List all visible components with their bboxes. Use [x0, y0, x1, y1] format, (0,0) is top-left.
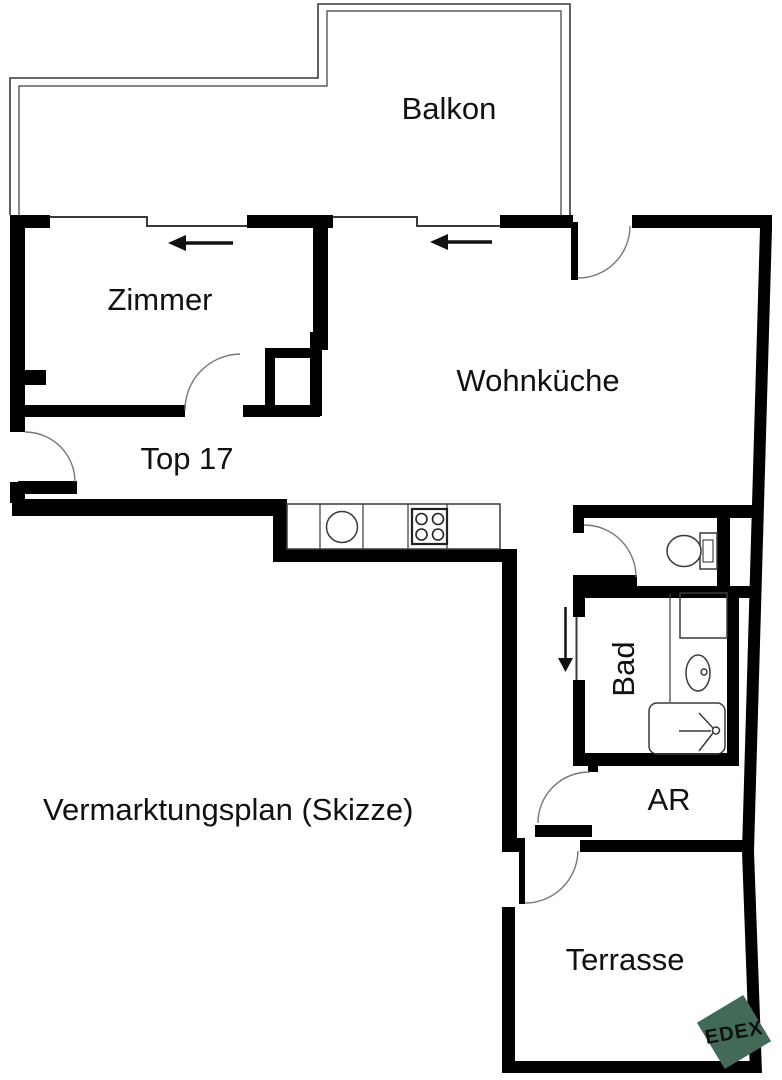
shaft-wall-left: [265, 350, 275, 412]
direction-arrow-icon: [558, 607, 573, 672]
bathroom-fixtures: [649, 593, 727, 754]
shower-icon: [649, 703, 725, 754]
wall-bad-east: [727, 598, 739, 766]
room-label-bad: Bad: [606, 641, 641, 696]
door-swing-arc: [185, 354, 240, 410]
wall-ar-south-left: [535, 825, 592, 837]
room-label-terrasse: Terrasse: [566, 942, 685, 977]
room-label-balkon: Balkon: [402, 91, 497, 126]
bath-counter: [680, 593, 727, 638]
wc-door-stub: [573, 518, 584, 533]
door-swing-arc: [538, 772, 590, 823]
ar-door-stub: [588, 757, 598, 772]
toilet-icon: [667, 533, 717, 569]
wall-wc-north: [573, 505, 754, 518]
wall-terrace-south: [502, 1061, 756, 1073]
door-swing-arc: [525, 851, 578, 903]
room-label-wohnkueche: Wohnküche: [456, 363, 619, 398]
shaft-wall-right: [310, 332, 322, 416]
room-label-ar: AR: [647, 782, 690, 817]
wall-bad-west-upper: [573, 598, 585, 617]
door-swing-arc: [584, 525, 636, 577]
wall-zimmer-south-2: [243, 405, 320, 417]
wall-zimmer-south-1: [25, 405, 185, 417]
floor-plan-drawing: Balkon Zimmer Wohnküche Top 17 Bad AR Te…: [0, 0, 782, 1080]
floor-plan-page: Balkon Zimmer Wohnküche Top 17 Bad AR Te…: [0, 0, 782, 1080]
wall-west-step: [502, 838, 525, 852]
window-line: [50, 217, 247, 226]
plan-title: Vermarktungsplan (Skizze): [43, 792, 413, 827]
wall-top-3: [500, 215, 573, 228]
direction-arrow-icon: [168, 235, 233, 251]
wall-top-2: [247, 215, 333, 228]
washbasin-icon: [686, 655, 710, 691]
wall-wc-east: [717, 518, 730, 586]
stove-icon: [412, 509, 447, 544]
room-label-zimmer: Zimmer: [107, 282, 212, 317]
wall-wc-south: [573, 575, 637, 587]
wall-bad-north: [573, 586, 750, 598]
terrace-door-leaf: [519, 852, 525, 904]
entrance-door-leaf: [18, 481, 77, 494]
kitchen-counter: [287, 504, 500, 549]
wall-hall-south: [12, 499, 287, 516]
wall-west-mid: [502, 549, 517, 838]
wall-pier: [25, 370, 46, 385]
wall-zimmer-east: [313, 228, 328, 350]
wk-door-stub: [571, 222, 578, 280]
wall-top-4: [632, 215, 772, 228]
door-swing-arc: [25, 432, 75, 482]
wall-east: [742, 228, 772, 1073]
unit-label: Top 17: [140, 441, 233, 476]
wall-west-lower: [502, 907, 515, 1073]
sink-icon: [327, 512, 358, 543]
wall-west-upper: [10, 215, 25, 432]
wall-ar-south-right: [580, 840, 746, 852]
direction-arrow-icon: [430, 234, 492, 250]
wall-hall-south-jog: [273, 516, 287, 550]
window-line: [333, 217, 500, 226]
door-swing-arc: [578, 226, 630, 278]
wall-bad-west-lower: [573, 680, 585, 753]
wall-kitchen-south: [273, 549, 517, 562]
